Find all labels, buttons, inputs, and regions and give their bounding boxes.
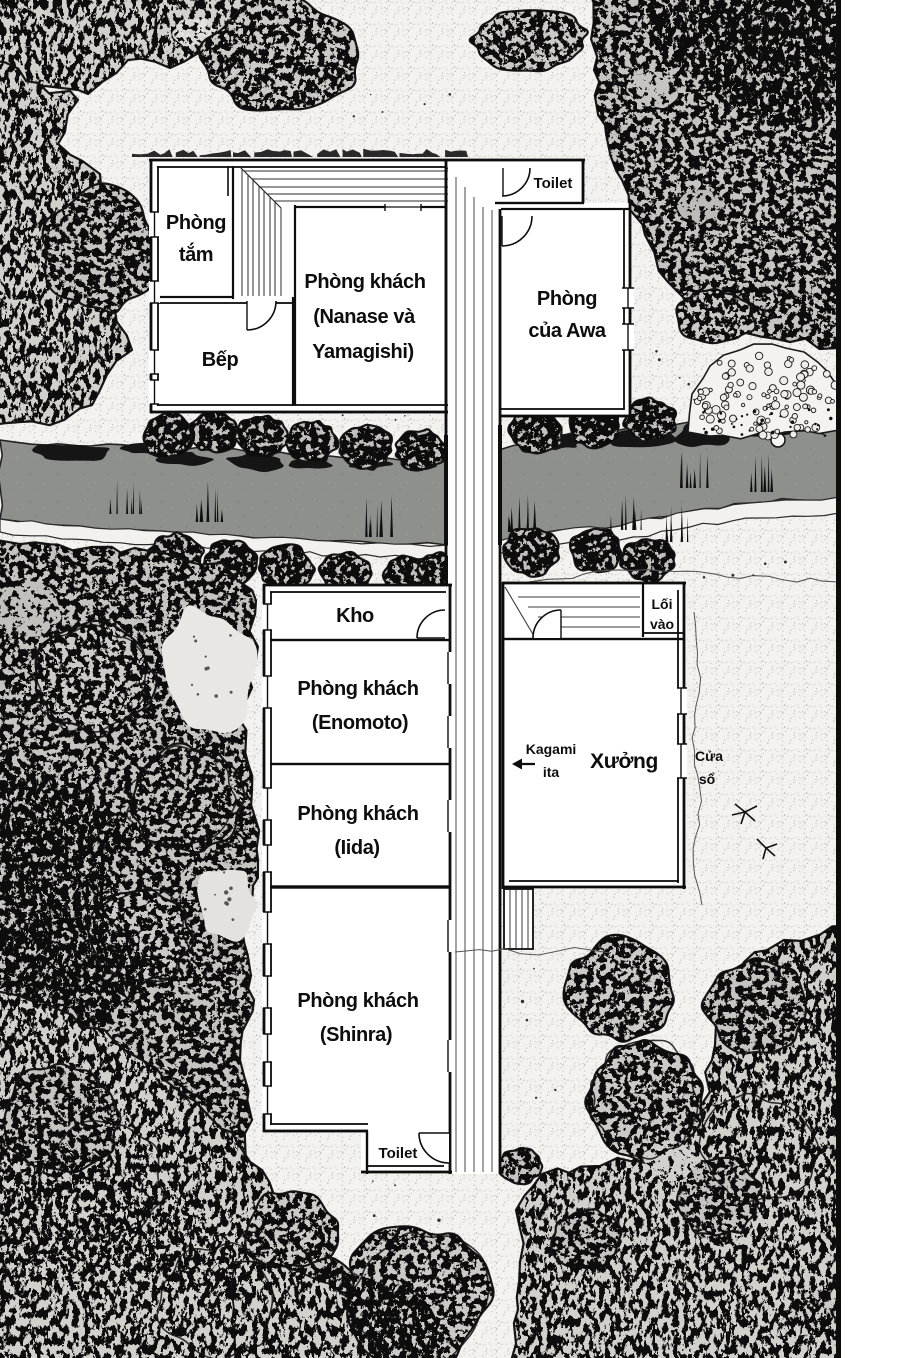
svg-text:vào: vào (650, 616, 674, 632)
svg-text:(Nanase và: (Nanase và (313, 306, 416, 328)
svg-text:(Enomoto): (Enomoto) (312, 712, 408, 734)
svg-text:tắm: tắm (179, 242, 213, 266)
svg-text:Phòng khách: Phòng khách (297, 990, 418, 1012)
svg-text:sổ: sổ (699, 771, 715, 787)
svg-text:Lối: Lối (652, 596, 673, 612)
svg-text:Toilet: Toilet (534, 175, 573, 192)
svg-text:Xưởng: Xưởng (590, 750, 658, 773)
svg-text:Phòng khách: Phòng khách (304, 271, 425, 293)
svg-text:Cửa: Cửa (695, 748, 723, 764)
svg-text:ita: ita (543, 764, 560, 780)
svg-text:Kagami: Kagami (526, 741, 577, 757)
svg-text:Toilet: Toilet (379, 1145, 418, 1162)
svg-text:của Awa: của Awa (528, 320, 607, 342)
svg-text:Kho: Kho (336, 605, 374, 627)
svg-text:(Iida): (Iida) (334, 837, 379, 859)
svg-text:Phòng: Phòng (166, 212, 226, 234)
svg-text:(Shinra): (Shinra) (320, 1024, 392, 1046)
svg-text:Bếp: Bếp (202, 349, 239, 371)
svg-text:Phòng: Phòng (537, 288, 597, 310)
svg-text:Phòng khách: Phòng khách (297, 803, 418, 825)
svg-text:Yamagishi): Yamagishi) (312, 341, 414, 363)
svg-text:Phòng khách: Phòng khách (297, 678, 418, 700)
